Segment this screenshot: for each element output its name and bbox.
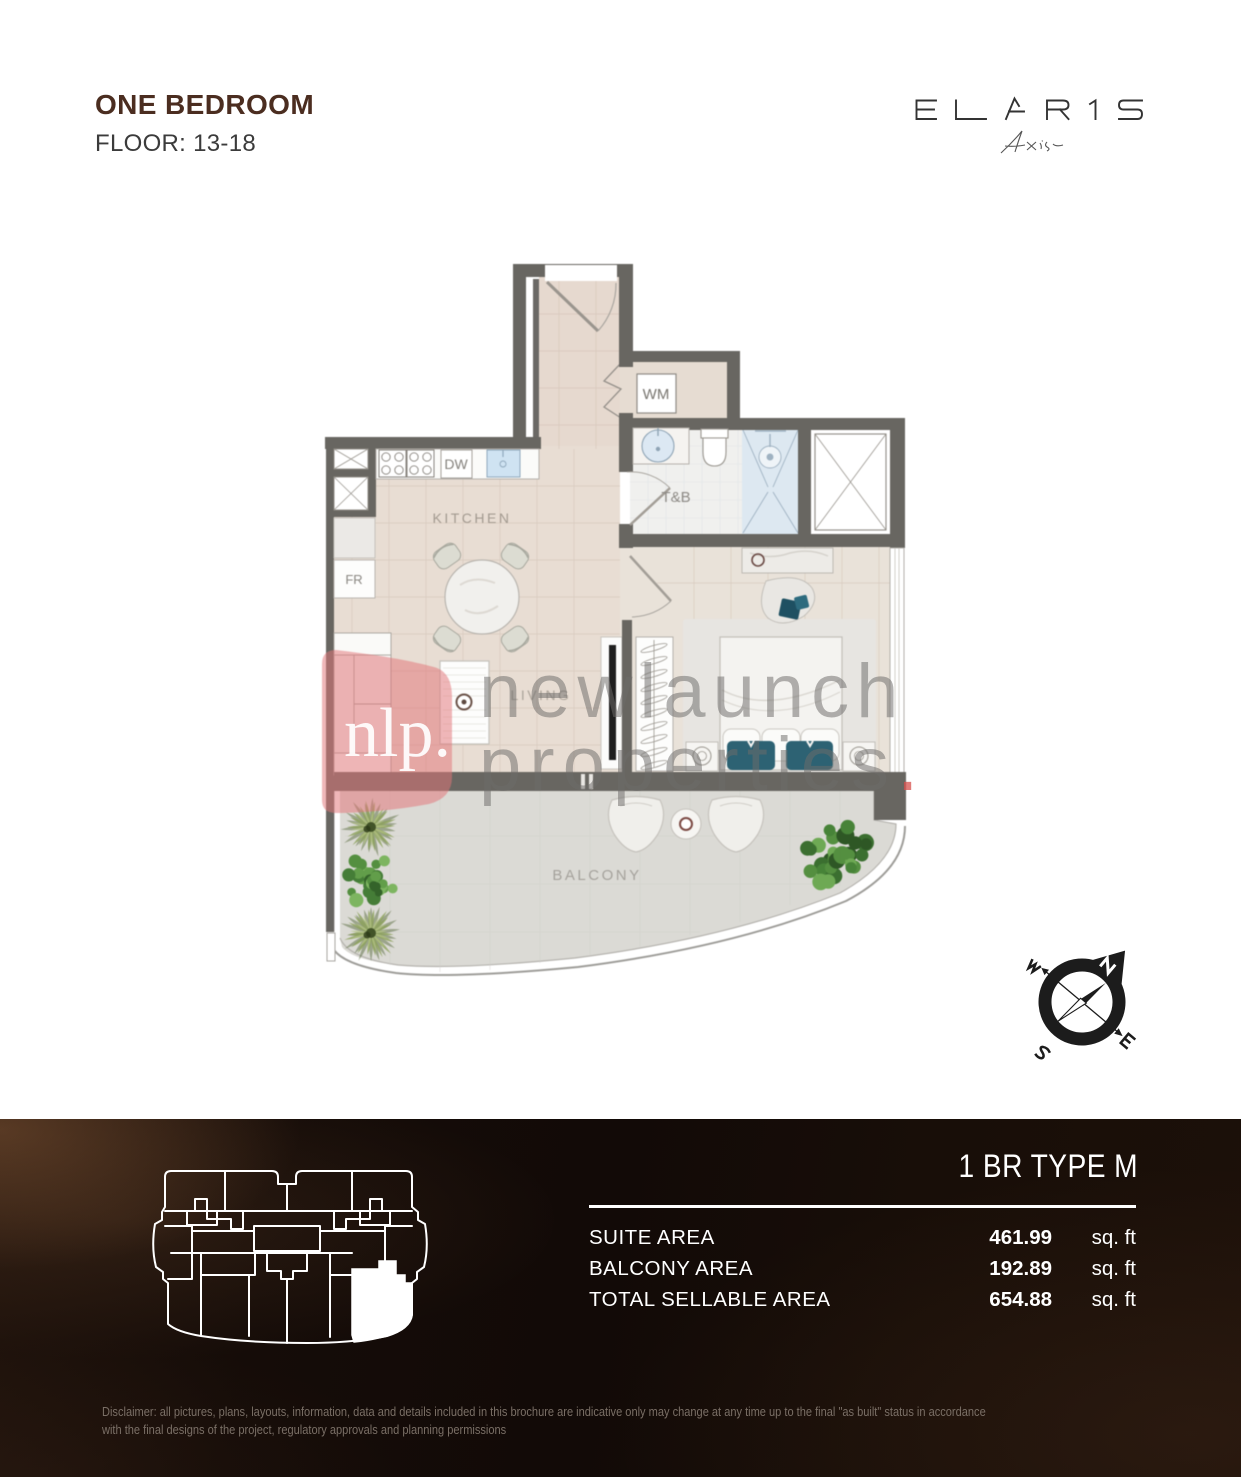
svg-text:DW: DW [444,456,468,472]
svg-text:BALCONY: BALCONY [552,867,641,884]
svg-text:T&B: T&B [661,489,690,506]
svg-text:KITCHEN: KITCHEN [433,510,512,526]
svg-text:WM: WM [643,386,670,403]
svg-text:FR: FR [345,572,362,587]
